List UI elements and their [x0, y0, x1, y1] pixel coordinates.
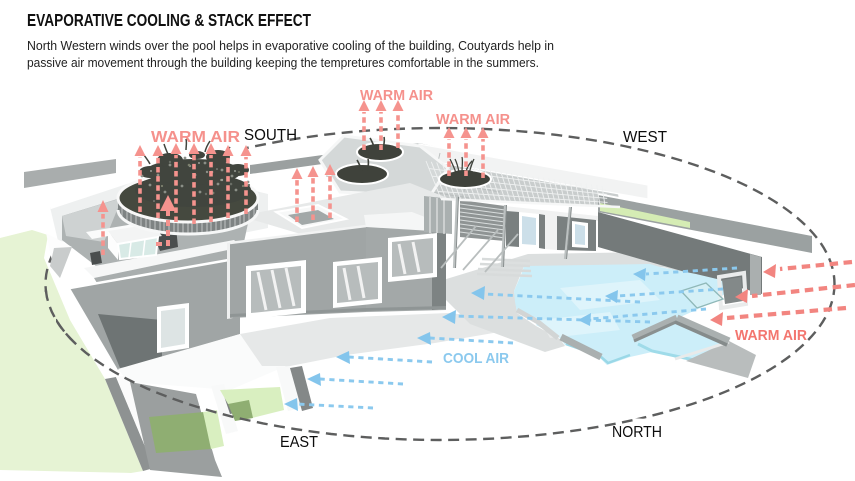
- svg-text:passive air movement through t: passive air movement through the buildin…: [27, 55, 539, 70]
- svg-text:COOL AIR: COOL AIR: [443, 350, 509, 367]
- svg-text:North Western winds over the p: North Western winds over the pool helps …: [27, 38, 554, 53]
- svg-text:WARM AIR: WARM AIR: [436, 111, 510, 128]
- svg-text:EAST: EAST: [280, 434, 318, 451]
- svg-text:WEST: WEST: [623, 129, 668, 146]
- svg-text:WARM AIR: WARM AIR: [735, 327, 807, 344]
- svg-text:NORTH: NORTH: [612, 424, 662, 441]
- svg-text:EVAPORATIVE COOLING & STACK EF: EVAPORATIVE COOLING & STACK EFFECT: [27, 10, 311, 30]
- svg-text:WARM AIR: WARM AIR: [151, 129, 240, 146]
- svg-text:WARM AIR: WARM AIR: [360, 87, 433, 104]
- svg-text:SOUTH: SOUTH: [244, 127, 297, 144]
